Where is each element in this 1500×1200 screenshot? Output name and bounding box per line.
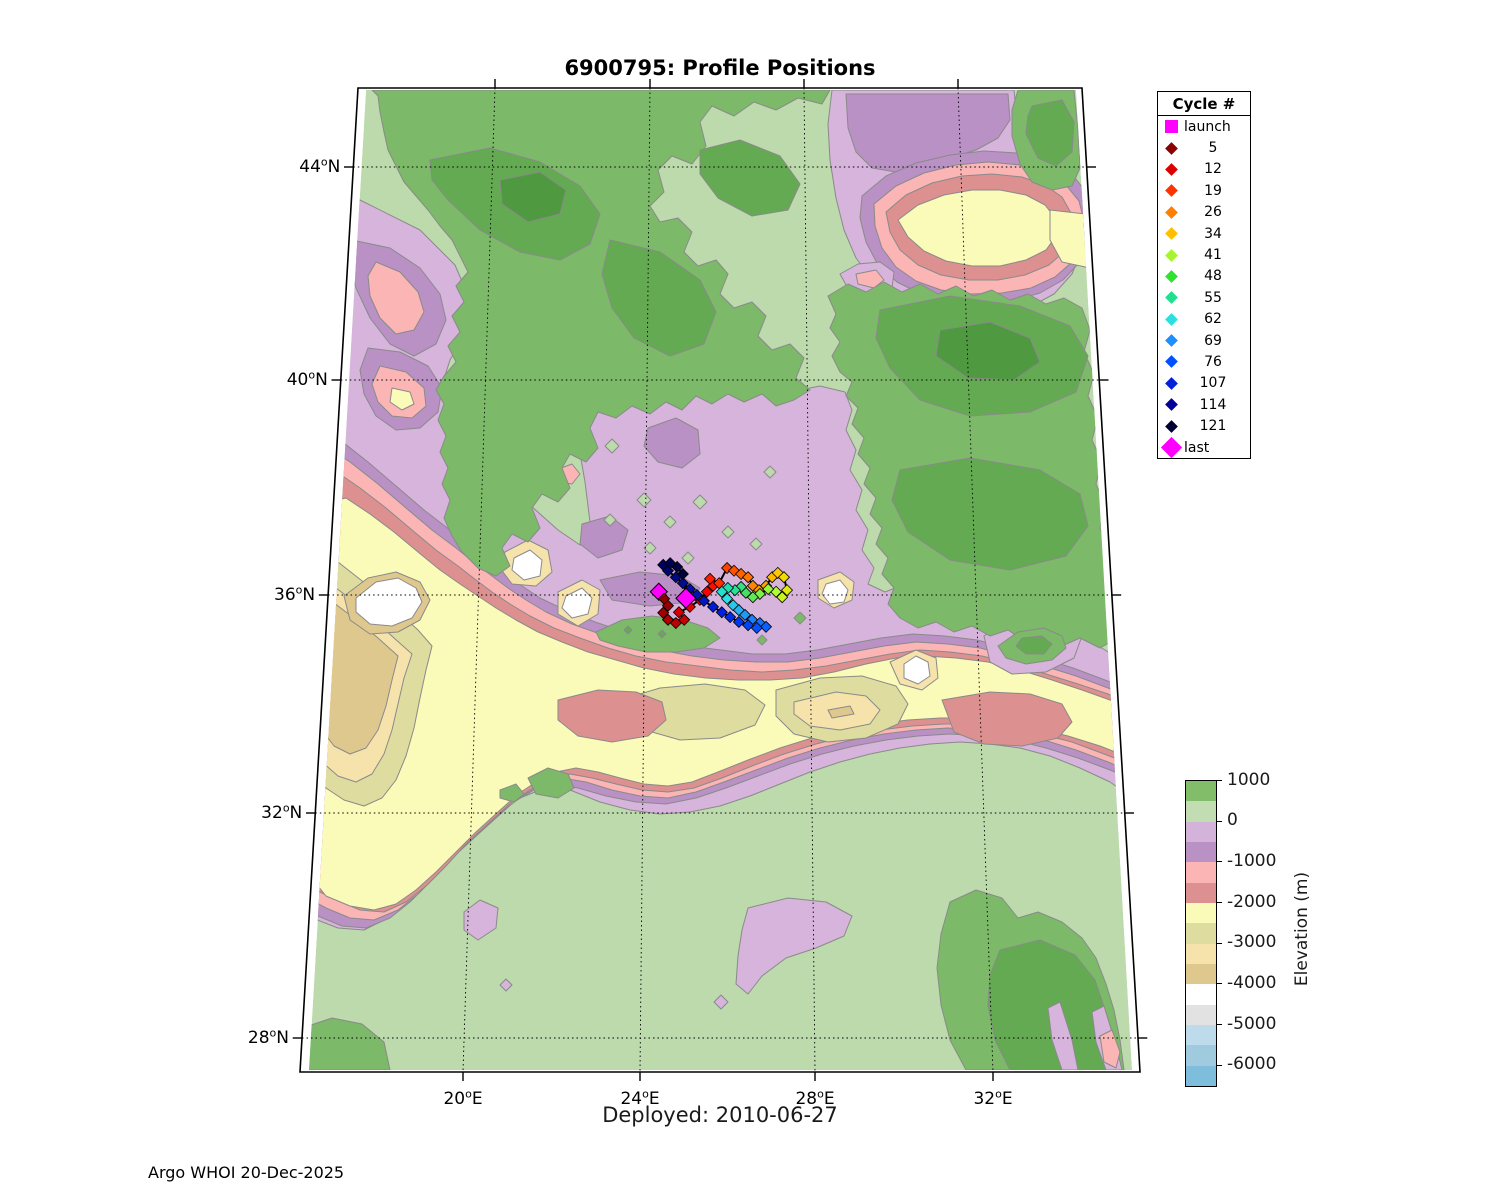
legend-label: 55 <box>1184 290 1250 306</box>
diamond-marker-icon <box>1165 398 1178 411</box>
colorbar-segment <box>1186 842 1216 863</box>
legend-title: Cycle # <box>1158 92 1250 116</box>
colorbar-segment <box>1186 964 1216 985</box>
legend-label: 41 <box>1184 247 1250 263</box>
diamond-marker-icon <box>1165 356 1178 369</box>
legend-label: 107 <box>1184 375 1250 391</box>
legend-label: 5 <box>1184 140 1250 156</box>
lon-tick-label-32E: 32oE <box>953 1086 1033 1112</box>
colorbar-tick <box>1216 1024 1222 1025</box>
legend-item-19: 19 <box>1158 180 1250 201</box>
diamond-marker-icon <box>1165 291 1178 304</box>
legend-label: 34 <box>1184 226 1250 242</box>
square-marker-icon <box>1165 120 1178 133</box>
lat-tick-label-44N: 44oN <box>270 154 340 180</box>
diamond-marker-icon <box>1165 184 1178 197</box>
colorbar-segment <box>1186 984 1216 1005</box>
lat-tick-label-28N: 28oN <box>219 1025 289 1051</box>
colorbar-tick-label: -1000 <box>1227 851 1276 872</box>
legend-label: 26 <box>1184 204 1250 220</box>
legend-label: 69 <box>1184 333 1250 349</box>
diamond-marker-icon <box>1165 334 1178 347</box>
page-title: 6900795: Profile Positions <box>0 56 1440 80</box>
legend-item-69: 69 <box>1158 330 1250 351</box>
legend-item-76: 76 <box>1158 351 1250 372</box>
diamond-marker-icon <box>1165 270 1178 283</box>
footer-text: Argo WHOI 20-Dec-2025 <box>148 1163 344 1182</box>
colorbar-segment <box>1186 801 1216 822</box>
colorbar-tick-label: -6000 <box>1227 1054 1276 1075</box>
colorbar-tick <box>1216 902 1222 903</box>
colorbar-segment <box>1186 822 1216 843</box>
diamond-marker-icon <box>1165 377 1178 390</box>
colorbar-segment <box>1186 781 1216 802</box>
colorbar-segment <box>1186 944 1216 965</box>
legend-item-12: 12 <box>1158 159 1250 180</box>
legend-item-114: 114 <box>1158 394 1250 415</box>
legend-label: 62 <box>1184 311 1250 327</box>
legend-item-34: 34 <box>1158 223 1250 244</box>
diamond-marker-icon <box>1165 227 1178 240</box>
colorbar-segment <box>1186 1005 1216 1026</box>
colorbar-tick <box>1216 821 1222 822</box>
legend-item-121: 121 <box>1158 415 1250 436</box>
diamond-large-marker-icon <box>1160 437 1181 458</box>
colorbar-segment <box>1186 903 1216 924</box>
lat-tick-label-36N: 36oN <box>245 582 315 608</box>
colorbar-segment <box>1186 923 1216 944</box>
colorbar-tick-label: -2000 <box>1227 892 1276 913</box>
colorbar-tick-label: -3000 <box>1227 932 1276 953</box>
colorbar-tick <box>1216 943 1222 944</box>
colorbar <box>1185 780 1217 1087</box>
legend-label: launch <box>1184 119 1250 135</box>
colorbar-tick <box>1216 983 1222 984</box>
legend-label: last <box>1184 440 1250 456</box>
colorbar-tick <box>1216 1065 1222 1066</box>
colorbar-tick-label: 0 <box>1227 810 1238 831</box>
legend-item-launch: launch <box>1158 116 1250 137</box>
legend-label: 121 <box>1184 418 1250 434</box>
legend-item-last: last <box>1158 437 1250 458</box>
colorbar-tick-label: 1000 <box>1227 770 1270 791</box>
legend-item-62: 62 <box>1158 309 1250 330</box>
legend-label: 48 <box>1184 268 1250 284</box>
legend-item-41: 41 <box>1158 244 1250 265</box>
colorbar-tick <box>1216 780 1222 781</box>
figure: 6900795: Profile Positions Deployed: 201… <box>0 0 1500 1200</box>
xaxis-label-deployed: Deployed: 2010-06-27 <box>0 1103 1440 1127</box>
colorbar-segment <box>1186 862 1216 883</box>
colorbar-axis-label: Elevation (m) <box>1292 819 1312 1039</box>
diamond-marker-icon <box>1165 420 1178 433</box>
colorbar-segment <box>1186 1025 1216 1046</box>
diamond-marker-icon <box>1165 313 1178 326</box>
diamond-marker-icon <box>1165 142 1178 155</box>
diamond-marker-icon <box>1165 163 1178 176</box>
lon-tick-label-20E: 20oE <box>423 1086 503 1112</box>
legend-item-5: 5 <box>1158 137 1250 158</box>
legend-items: launch512192634414855626976107114121last <box>1158 116 1250 458</box>
lon-tick-label-28E: 28oE <box>775 1086 855 1112</box>
colorbar-tick <box>1216 861 1222 862</box>
colorbar-segment <box>1186 1045 1216 1066</box>
lat-tick-label-32N: 32oN <box>232 800 302 826</box>
colorbar-tick-label: -5000 <box>1227 1014 1276 1035</box>
legend-label: 19 <box>1184 183 1250 199</box>
lon-tick-label-24E: 24oE <box>600 1086 680 1112</box>
legend-label: 76 <box>1184 354 1250 370</box>
diamond-marker-icon <box>1165 249 1178 262</box>
legend-item-48: 48 <box>1158 266 1250 287</box>
colorbar-tick-label: -4000 <box>1227 973 1276 994</box>
colorbar-segment <box>1186 1066 1216 1087</box>
legend-label: 114 <box>1184 397 1250 413</box>
legend-item-107: 107 <box>1158 373 1250 394</box>
lat-tick-label-40N: 40oN <box>258 367 328 393</box>
legend-box: Cycle # launch51219263441485562697610711… <box>1157 91 1251 459</box>
legend-item-55: 55 <box>1158 287 1250 308</box>
legend-label: 12 <box>1184 161 1250 177</box>
colorbar-segment <box>1186 883 1216 904</box>
diamond-marker-icon <box>1165 206 1178 219</box>
legend-item-26: 26 <box>1158 202 1250 223</box>
